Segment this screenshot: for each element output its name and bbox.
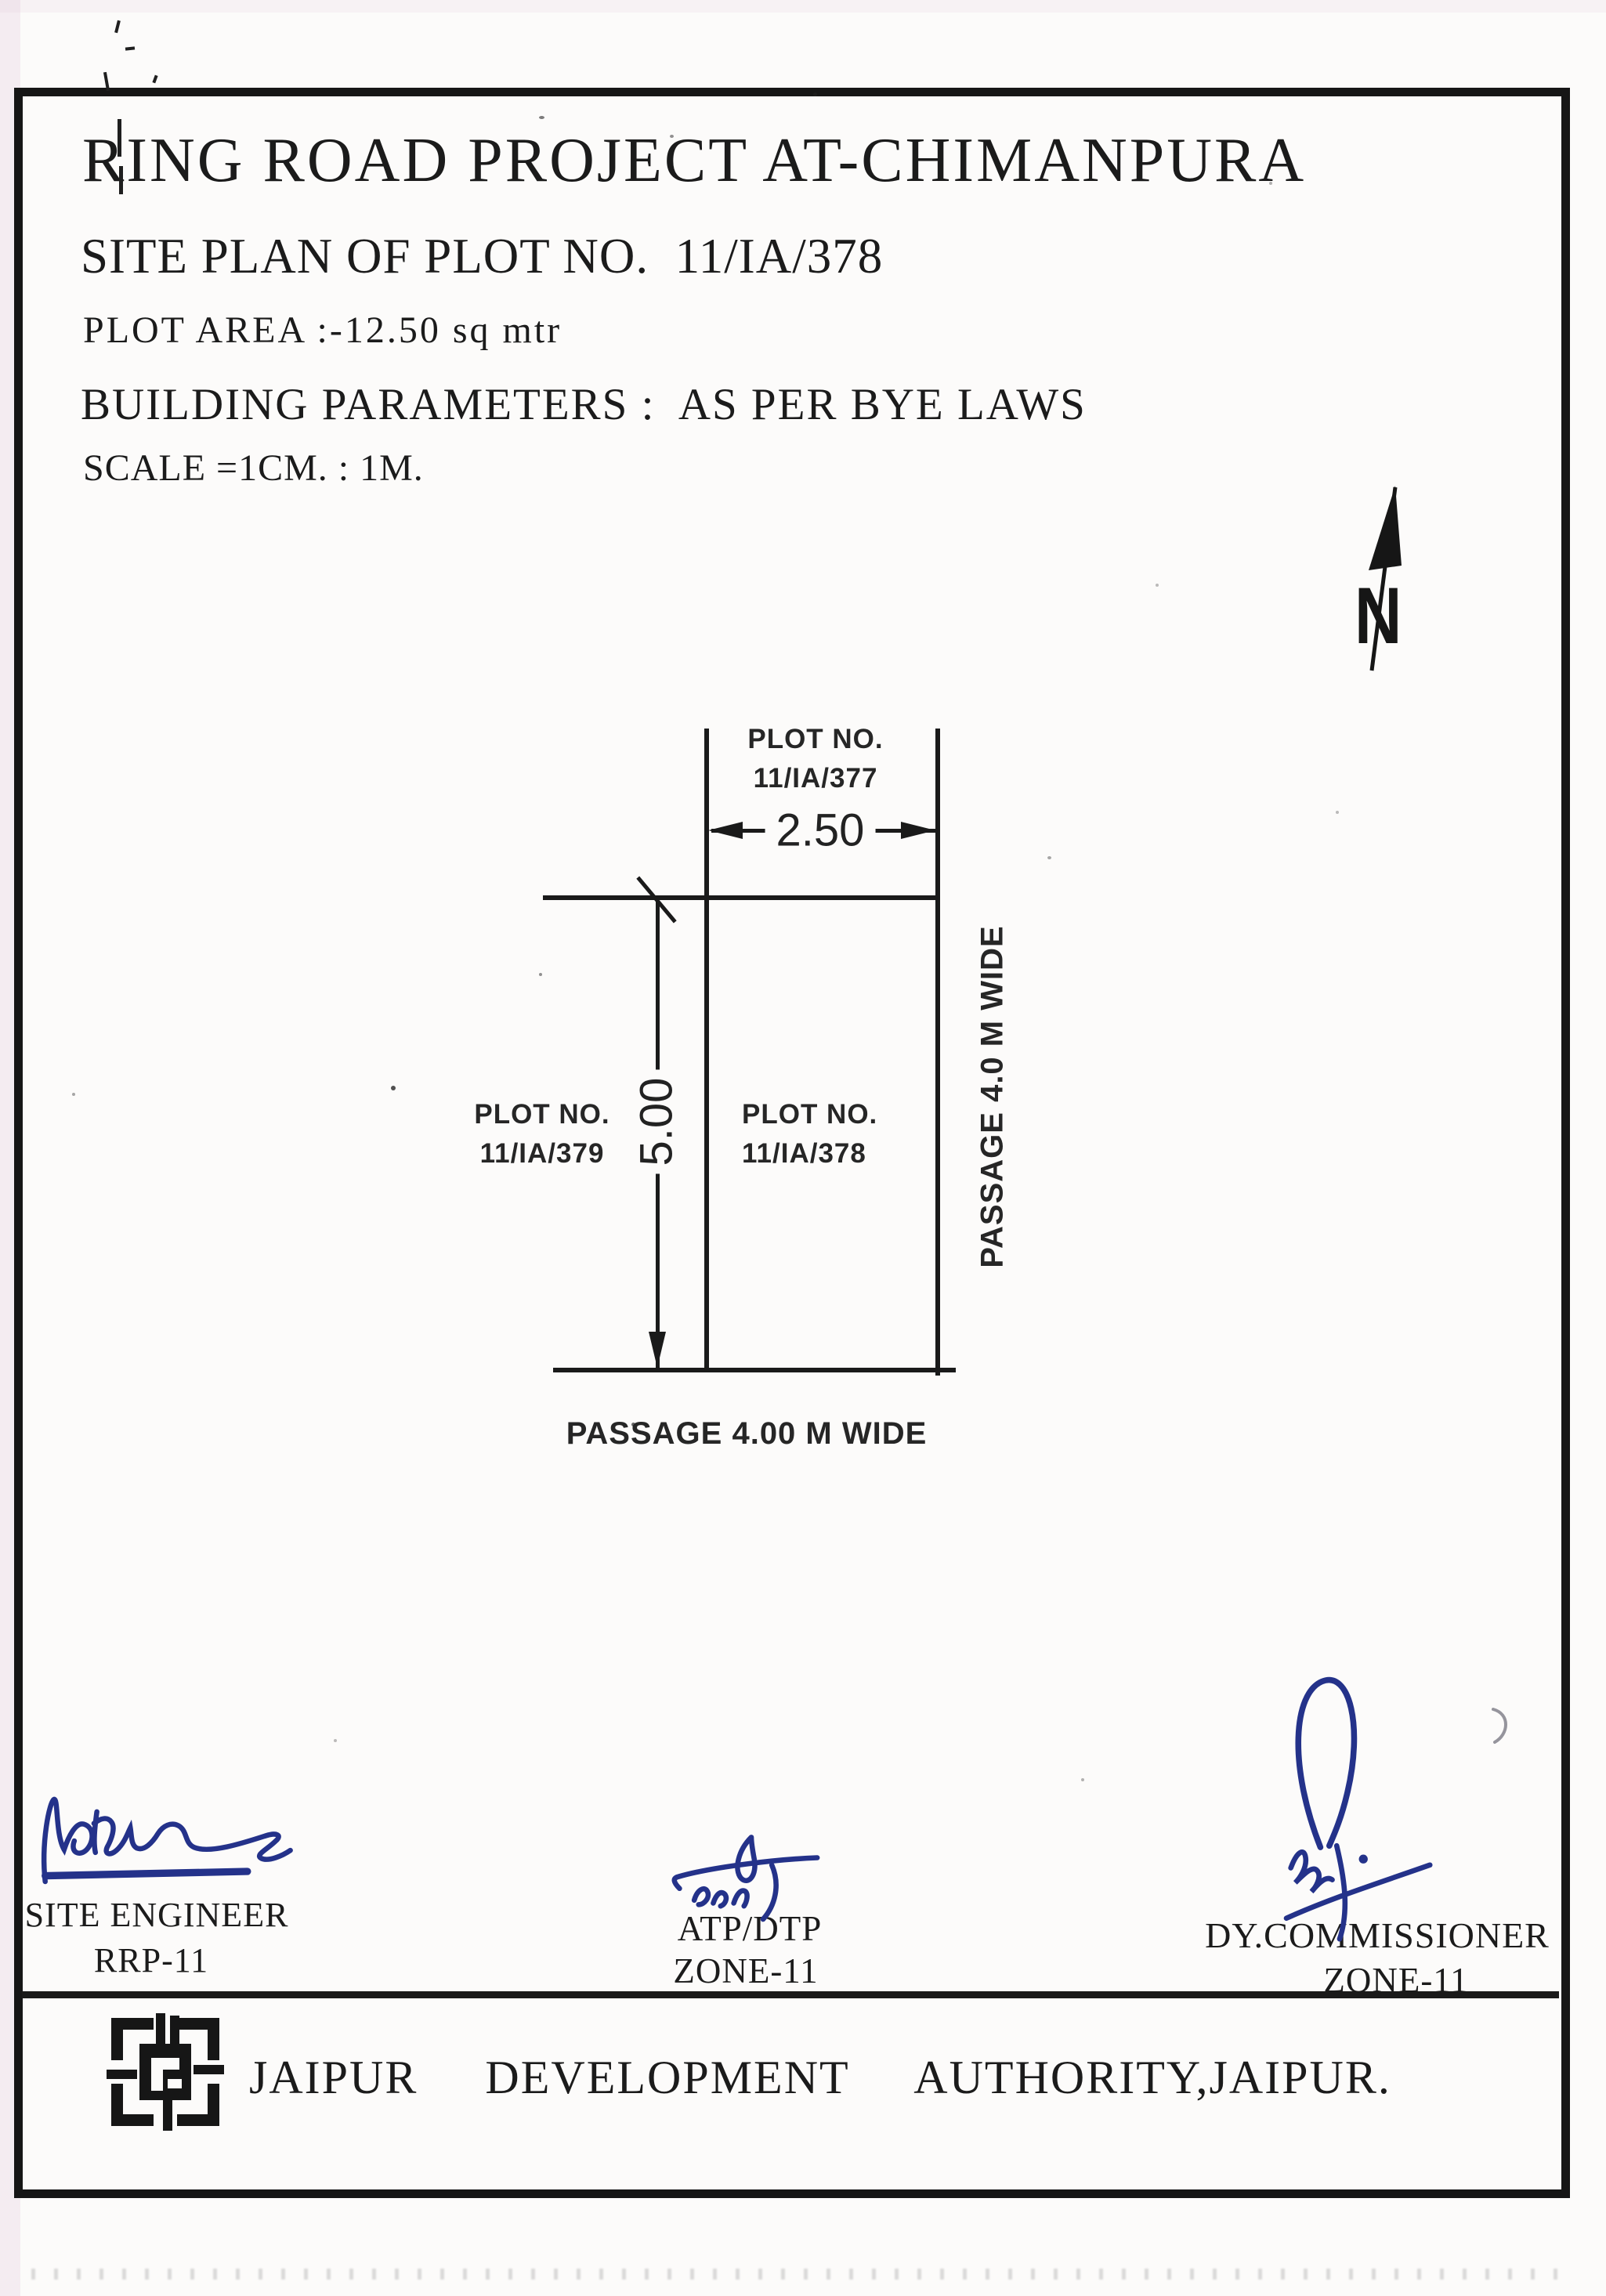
- north-label: N: [1355, 570, 1402, 662]
- atp-dtp-signature: [662, 1831, 830, 1929]
- south-passage-label: PASSAGE 4.00 M WIDE: [566, 1416, 928, 1452]
- west-plot-label-line1: PLOT NO.: [474, 1095, 609, 1134]
- scan-speck: [670, 135, 674, 138]
- scan-speck: [391, 1086, 396, 1090]
- building-parameters-line: BUILDING PARAMETERS : AS PER BYE LAWS: [81, 379, 1087, 430]
- scan-speck: [1081, 1778, 1084, 1781]
- depth-dimension-value: 5.00: [631, 1070, 683, 1174]
- subject-plot-label-line2: 11/IA/378: [742, 1134, 877, 1173]
- pen-scratch: [125, 46, 135, 50]
- pencil-curl-mark: [1487, 1706, 1515, 1750]
- scan-speck: [1156, 584, 1159, 587]
- dimension-arrow-right-icon: [901, 822, 935, 839]
- plot-east-boundary-line: [935, 729, 940, 1376]
- scan-speck: [1047, 856, 1051, 859]
- north-plot-label-line1: PLOT NO.: [747, 720, 883, 759]
- dy-commissioner-signature: [1273, 1665, 1473, 1953]
- scan-edge-tint-top: [0, 0, 1606, 13]
- scan-speck: [539, 116, 544, 119]
- north-plot-label-line2: 11/IA/377: [747, 759, 883, 798]
- scan-speck: [1269, 182, 1272, 185]
- jda-logo: [103, 2013, 227, 2131]
- document-title: RING ROAD PROJECT AT-CHIMANPURA: [82, 125, 1306, 197]
- plot-south-boundary-line: [553, 1368, 956, 1372]
- scan-speck: [813, 92, 817, 96]
- footer-divider-line: [22, 1991, 1559, 1998]
- north-plot-label: PLOT NO. 11/IA/377: [747, 720, 883, 797]
- scan-speck: [631, 1423, 635, 1426]
- pen-scratch: [118, 119, 121, 157]
- signature1-role: SITE ENGINEER: [25, 1895, 289, 1935]
- plot-north-boundary-line: [543, 895, 940, 900]
- subject-plot-label-line1: PLOT NO.: [742, 1095, 877, 1134]
- subject-plot-label: PLOT NO. 11/IA/378: [742, 1095, 877, 1173]
- signature1-unit: RRP-11: [94, 1940, 208, 1980]
- width-dimension-value: 2.50: [765, 805, 876, 857]
- scan-speck: [334, 1739, 337, 1742]
- scan-speck: [1336, 811, 1339, 814]
- east-passage-label: PASSAGE 4.0 M WIDE: [975, 925, 1011, 1267]
- dimension-arrow-down-icon: [649, 1332, 666, 1368]
- dimension-arrow-left-icon: [708, 822, 743, 839]
- scale-line: SCALE =1CM. : 1M.: [83, 447, 424, 490]
- west-plot-label-line2: 11/IA/379: [474, 1134, 609, 1173]
- signature2-unit: ZONE-11: [673, 1951, 818, 1991]
- west-plot-label: PLOT NO. 11/IA/379: [474, 1095, 609, 1173]
- bottom-scan-noise-strip: [31, 2269, 1567, 2280]
- site-engineer-signature: [31, 1790, 298, 1892]
- pen-scratch: [152, 75, 157, 84]
- scan-speck: [539, 973, 542, 976]
- pen-scratch: [114, 20, 121, 33]
- footer-organization: JAIPUR DEVELOPMENT AUTHORITY,JAIPUR.: [249, 2051, 1391, 2105]
- scanned-site-plan-document: RING ROAD PROJECT AT-CHIMANPURA SITE PLA…: [0, 0, 1606, 2296]
- site-plan-subtitle: SITE PLAN OF PLOT NO. 11/IA/378: [81, 228, 883, 285]
- scan-speck: [72, 1093, 75, 1096]
- pen-scratch: [119, 166, 123, 194]
- plot-area-line: PLOT AREA :-12.50 sq mtr: [83, 309, 562, 352]
